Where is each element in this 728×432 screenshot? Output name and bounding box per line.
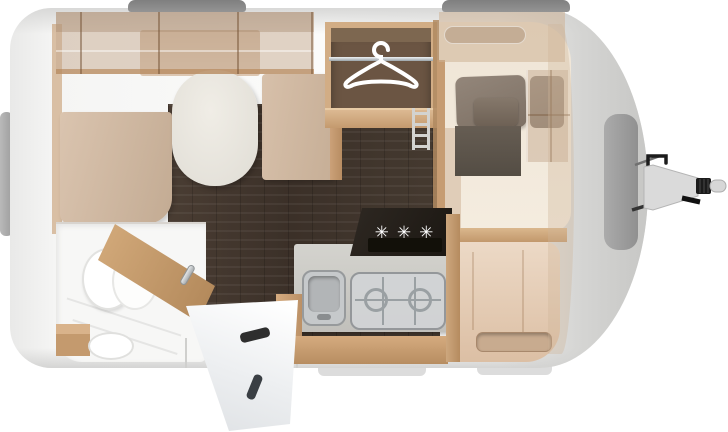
- bed-side-rail: [437, 60, 445, 232]
- caravan-floorplan: ✳✳✳: [0, 0, 728, 432]
- faucet: [317, 314, 331, 320]
- tow-ball-cover: [710, 180, 726, 192]
- entry-floor-seam: [522, 250, 524, 332]
- cabinet-divider: [311, 12, 313, 74]
- drawbar-cover: [644, 165, 698, 210]
- dinette-table: [172, 70, 258, 186]
- sink-basin: [308, 276, 340, 312]
- bed-pillow-small: [474, 98, 518, 126]
- bathroom-corner-cabinet: [56, 324, 90, 356]
- kitchen-wood-frame-bottom: [276, 336, 448, 364]
- entry-floor-seam: [472, 252, 474, 330]
- dinette-bench-left: [60, 112, 172, 224]
- roof-vent-left: [128, 0, 246, 12]
- doorway-seam: [185, 338, 187, 368]
- roof-vent-right: [442, 0, 570, 12]
- drawbar-hitch: [608, 132, 728, 224]
- burner-symbols: ✳✳✳: [368, 220, 448, 246]
- dinette-bench-right: [262, 74, 334, 180]
- bunk-ladder: [412, 108, 430, 150]
- hanger-icon: [337, 38, 425, 100]
- bed-blanket: [455, 126, 521, 176]
- kitchen-end-panel: [446, 214, 460, 362]
- overhead-cabinet-shelf: [56, 50, 314, 52]
- burner-ring: [364, 288, 388, 312]
- cabinet-divider: [158, 12, 160, 74]
- cabinet-divider: [80, 12, 82, 74]
- bed-locker-handle-recess: [444, 26, 526, 44]
- entry-step-recess: [476, 332, 552, 352]
- overhead-cabinets: [56, 12, 314, 74]
- bathroom-wash-basin: [88, 332, 134, 360]
- hitch-lower-arm: [682, 198, 700, 202]
- front-wall-overlay: [548, 24, 574, 354]
- overhead-cabinet-back: [56, 12, 314, 32]
- burner-ring: [408, 288, 432, 312]
- cabinet-divider: [237, 12, 239, 74]
